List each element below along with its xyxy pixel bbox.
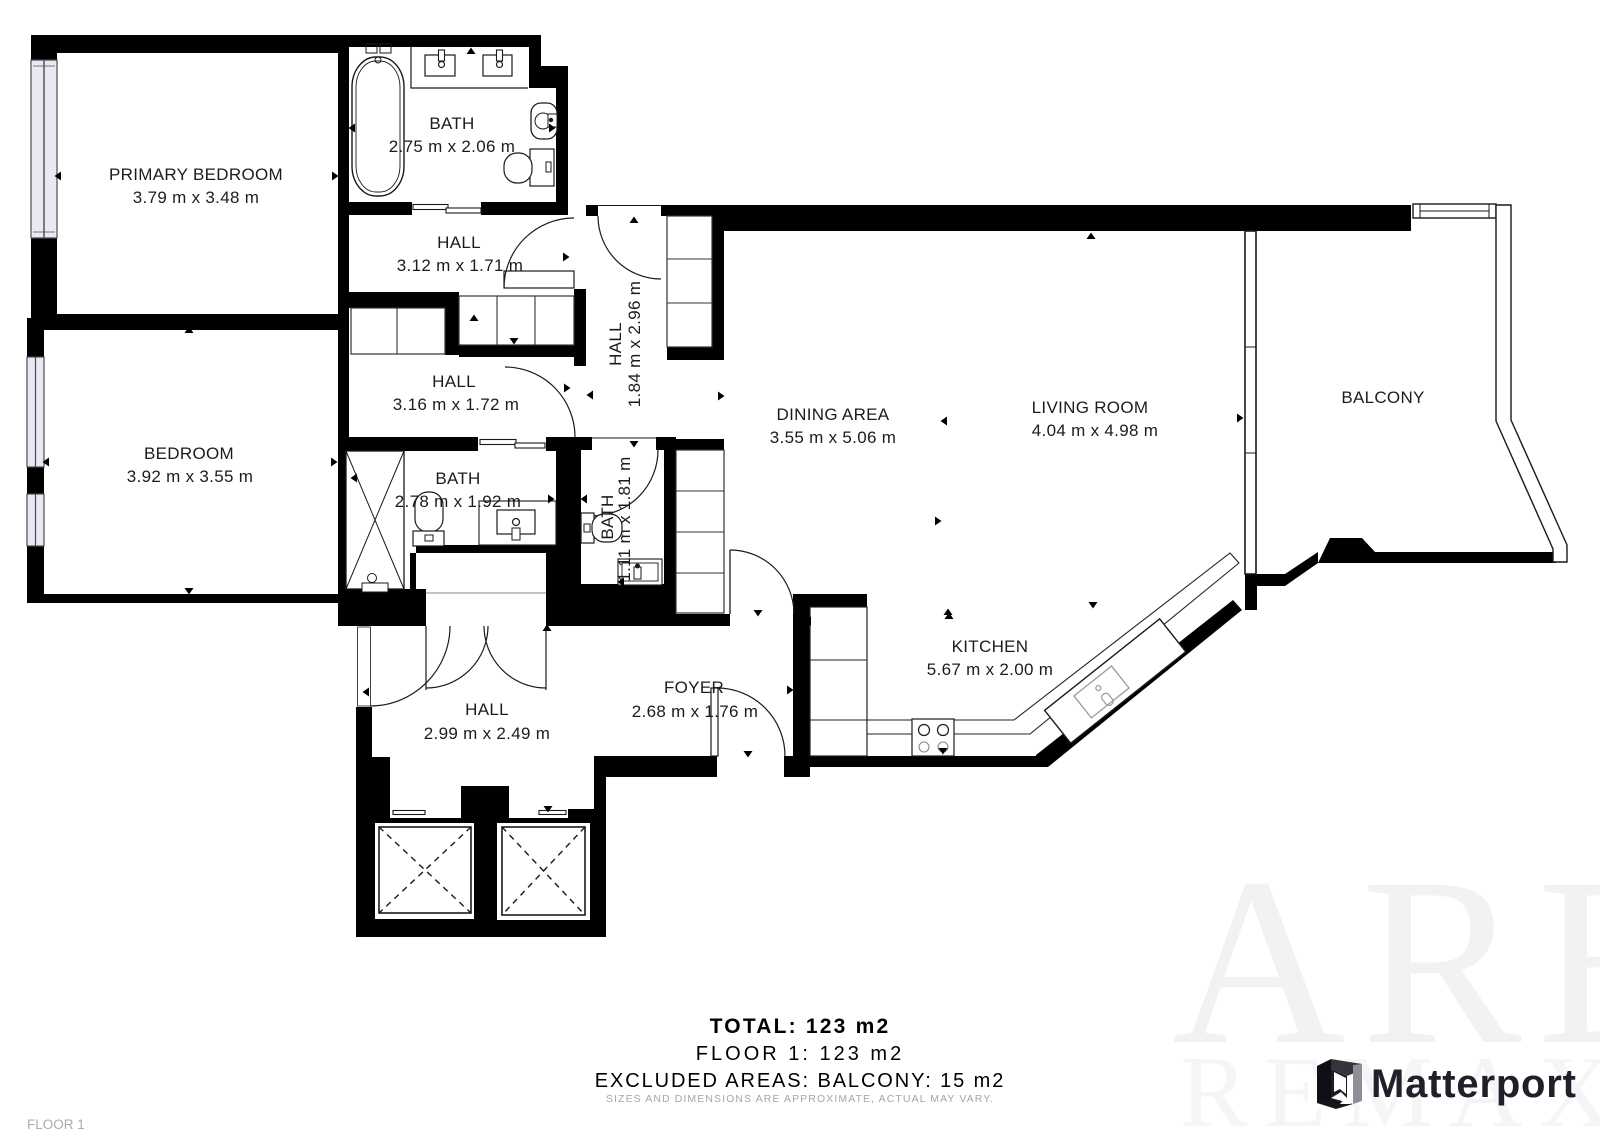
svg-text:BATH: BATH	[429, 114, 474, 133]
svg-text:3.55 m x 5.06 m: 3.55 m x 5.06 m	[770, 428, 896, 447]
svg-text:HALL: HALL	[437, 233, 481, 252]
svg-text:DINING AREA: DINING AREA	[777, 405, 890, 424]
svg-text:3.12 m x 1.71 m: 3.12 m x 1.71 m	[397, 256, 523, 275]
svg-text:LIVING ROOM: LIVING ROOM	[1032, 398, 1149, 417]
svg-text:HALL: HALL	[432, 372, 476, 391]
svg-text:BATH: BATH	[435, 469, 480, 488]
svg-text:1.84 m x 2.96 m: 1.84 m x 2.96 m	[625, 281, 644, 407]
svg-text:PRIMARY BEDROOM: PRIMARY BEDROOM	[109, 165, 283, 184]
svg-text:KITCHEN: KITCHEN	[952, 637, 1029, 656]
svg-text:5.67 m x 2.00 m: 5.67 m x 2.00 m	[927, 660, 1053, 679]
svg-text:FOYER: FOYER	[664, 678, 724, 697]
svg-text:4.04 m x 4.98 m: 4.04 m x 4.98 m	[1032, 421, 1158, 440]
svg-text:2.68 m x 1.76 m: 2.68 m x 1.76 m	[632, 702, 758, 721]
svg-text:BALCONY: BALCONY	[1341, 388, 1424, 407]
svg-text:BEDROOM: BEDROOM	[144, 444, 234, 463]
svg-text:3.79 m x 3.48 m: 3.79 m x 3.48 m	[133, 188, 259, 207]
svg-text:2.78 m x 1.92 m: 2.78 m x 1.92 m	[395, 492, 521, 511]
svg-text:1.11 m x 1.81 m: 1.11 m x 1.81 m	[615, 456, 634, 581]
svg-text:2.75 m x 2.06 m: 2.75 m x 2.06 m	[389, 137, 515, 156]
svg-text:HALL: HALL	[606, 322, 625, 366]
svg-text:3.92 m x 3.55 m: 3.92 m x 3.55 m	[127, 467, 253, 486]
svg-text:HALL: HALL	[465, 700, 509, 719]
svg-text:2.99 m x 2.49 m: 2.99 m x 2.49 m	[424, 724, 550, 743]
svg-text:FLOOR 1: 123 m2: FLOOR 1: 123 m2	[696, 1043, 904, 1065]
svg-text:TOTAL: 123 m2: TOTAL: 123 m2	[710, 1015, 891, 1038]
svg-text:EXCLUDED AREAS: BALCONY: 15 m2: EXCLUDED AREAS: BALCONY: 15 m2	[595, 1070, 1005, 1092]
svg-text:FLOOR 1: FLOOR 1	[27, 1117, 85, 1131]
svg-text:Matterport: Matterport	[1371, 1062, 1577, 1106]
svg-text:SIZES AND DIMENSIONS ARE APPRO: SIZES AND DIMENSIONS ARE APPROXIMATE, AC…	[606, 1093, 994, 1105]
svg-text:3.16 m x 1.72 m: 3.16 m x 1.72 m	[393, 395, 519, 414]
